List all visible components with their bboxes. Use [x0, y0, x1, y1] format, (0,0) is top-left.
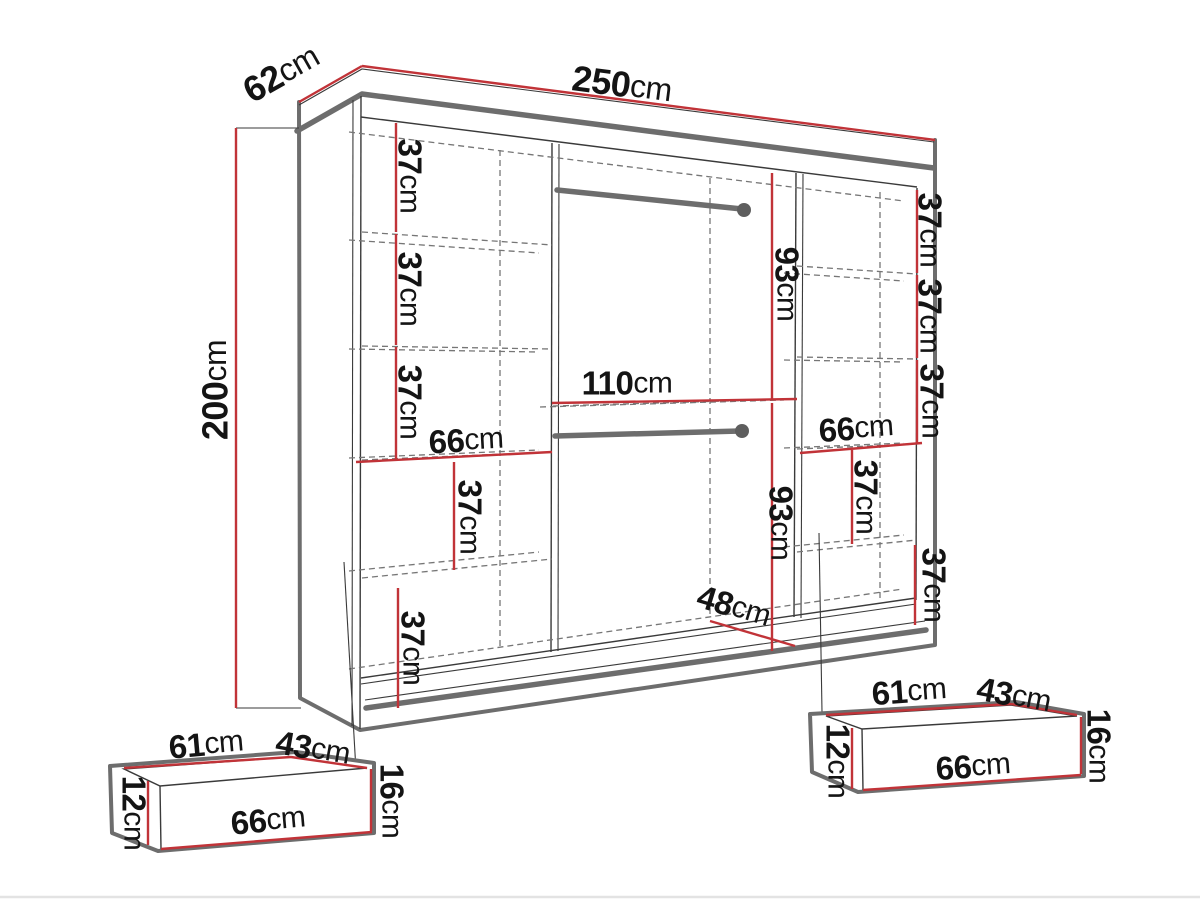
drawer-left-dim-16: 16cm — [374, 764, 411, 839]
dim-left-shelf37-5: 37cm — [395, 611, 432, 686]
divider-left — [551, 143, 552, 652]
drawer-right-front-inner-edge — [862, 729, 863, 790]
hanging-rail-bottom-end — [735, 424, 749, 438]
dim-middle-width-110: 110cm — [582, 365, 673, 402]
dim-left-width-66: 66cm — [428, 420, 505, 461]
dim-rail-drop-93-top: 93cm — [769, 247, 806, 322]
drawer-right-dim-16: 16cm — [1081, 709, 1118, 784]
drawer-left-front-inner-edge — [160, 786, 161, 849]
dim-right-shelf37-3: 37cm — [914, 364, 951, 439]
drawer-right-dim-12: 12cm — [820, 724, 857, 799]
wardrobe-dimension-diagram: 62cm 250cm 200cm 37cm 37cm 37cm 66cm 37c… — [0, 0, 1200, 900]
dim-left-shelf37-2: 37cm — [392, 252, 429, 327]
dim-rail-drop-93-bottom: 93cm — [763, 486, 800, 561]
hanging-rail-top-end — [737, 203, 751, 217]
dim-height-200: 200cm — [195, 340, 236, 440]
dim-right-shelf37-5: 37cm — [916, 548, 953, 623]
drawer-left-dim-12: 12cm — [116, 776, 153, 851]
left-inner-wall — [360, 96, 361, 729]
dim-left-shelf37-3: 37cm — [392, 365, 429, 440]
dim-right-shelf37-4: 37cm — [848, 460, 885, 535]
dim-right-shelf37-1: 37cm — [912, 193, 949, 268]
dim-left-shelf37-4: 37cm — [452, 480, 489, 555]
dim-right-shelf37-2: 37cm — [912, 279, 949, 354]
dim-left-shelf37-1: 37cm — [392, 139, 429, 214]
